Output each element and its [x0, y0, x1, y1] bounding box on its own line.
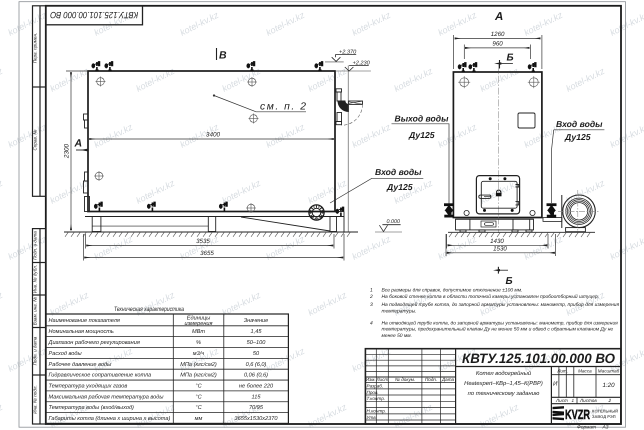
svg-text:Габариты котла (длинна х ширин: Габариты котла (длинна х ширина х высота…	[49, 415, 171, 422]
svg-text:Номинальная мощность: Номинальная мощность	[49, 329, 114, 335]
svg-text:Разраб.: Разраб.	[367, 384, 384, 389]
svg-text:Инв. № дубл.: Инв. № дубл.	[33, 265, 38, 293]
svg-text:№ докум.: № докум.	[395, 377, 415, 382]
svg-text:KVZR: KVZR	[565, 407, 590, 422]
svg-text:Диапазон рабочего регулировани: Диапазон рабочего регулирования	[48, 339, 140, 346]
svg-text:не более 220: не более 220	[239, 383, 274, 390]
svg-text:И: И	[553, 381, 558, 388]
svg-text:На отводящей трубе котла, до з: На отводящей трубе котла, до запорной ар…	[382, 321, 619, 327]
svg-text:Листов: Листов	[579, 398, 597, 403]
svg-text:0.000: 0.000	[387, 219, 401, 225]
svg-text:На подводящей трубе котла, до: На подводящей трубе котла, до запорной а…	[382, 302, 620, 308]
svg-text:Наименование показателя: Наименование показателя	[49, 318, 120, 324]
svg-text:1,45: 1,45	[251, 329, 263, 335]
svg-text:2: 2	[608, 398, 612, 403]
svg-text:Рабочее давление воды: Рабочее давление воды	[49, 361, 112, 368]
svg-text:3400: 3400	[206, 132, 221, 139]
svg-text:Справ. №: Справ. №	[33, 130, 38, 151]
svg-text:1: 1	[370, 288, 373, 294]
svg-text:температуры.: температуры.	[382, 309, 417, 314]
svg-text:1260: 1260	[491, 31, 505, 38]
svg-text:+2.230: +2.230	[353, 60, 371, 66]
svg-text:2: 2	[369, 294, 373, 300]
svg-text:температуры, предохранительный: температуры, предохранительный клапан Ду…	[382, 327, 614, 333]
svg-text:1430: 1430	[490, 238, 504, 245]
svg-text:Пров.: Пров.	[367, 390, 379, 395]
svg-text:измерения: измерения	[185, 321, 213, 327]
svg-text:Масштаб: Масштаб	[598, 369, 620, 374]
svg-text:1:20: 1:20	[602, 382, 615, 389]
svg-text:А: А	[494, 11, 503, 23]
svg-text:1: 1	[572, 398, 575, 403]
svg-text:Перв. примен.: Перв. примен.	[33, 33, 38, 64]
svg-text:3: 3	[370, 302, 373, 308]
svg-text:Температура уходящих газов: Температура уходящих газов	[49, 383, 128, 390]
svg-text:3655: 3655	[200, 250, 214, 257]
svg-text:Подп.: Подп.	[425, 377, 437, 382]
svg-text:Лист: Лист	[555, 398, 568, 403]
svg-text:1530: 1530	[493, 246, 507, 253]
svg-text:А3: А3	[602, 424, 609, 430]
svg-text:°С: °С	[195, 384, 202, 390]
svg-text:Максимальная рабочая температу: Максимальная рабочая температура воды	[49, 393, 164, 400]
svg-text:Все размеры для справок, допус: Все размеры для справок, допустимое откл…	[382, 288, 523, 294]
svg-text:Котел водогрейный: Котел водогрейный	[476, 370, 532, 377]
svg-text:Подп. и дата: Подп. и дата	[33, 336, 38, 365]
svg-text:МПа (кгс/см2): МПа (кгс/см2)	[180, 361, 217, 368]
svg-text:МПа (кгс/см2): МПа (кгс/см2)	[180, 372, 217, 379]
svg-text:Heatexpert–КВр–1,45–К(РВР): Heatexpert–КВр–1,45–К(РВР)	[464, 380, 543, 387]
svg-text:Вход воды: Вход воды	[556, 119, 603, 129]
svg-text:Температура воды (вход/выход): Температура воды (вход/выход)	[49, 404, 135, 411]
svg-text:Дата: Дата	[441, 377, 455, 382]
svg-text:Ду125: Ду125	[408, 130, 435, 140]
svg-text:2300: 2300	[64, 143, 71, 159]
svg-text:Лист: Лист	[375, 377, 388, 382]
svg-text:Лит.: Лит.	[556, 369, 568, 374]
svg-text:Выход воды: Выход воды	[395, 114, 450, 124]
svg-text:ЗАВОД РЭП: ЗАВОД РЭП	[592, 414, 616, 419]
svg-text:На боковой стенке котла в обла: На боковой стенке котла в области топочн…	[382, 294, 600, 300]
svg-text:50: 50	[253, 351, 260, 357]
svg-text:Н.контр.: Н.контр.	[367, 409, 386, 414]
svg-text:Формат: Формат	[577, 424, 596, 430]
svg-text:КВТУ.125.101.00.000 ВО: КВТУ.125.101.00.000 ВО	[50, 10, 138, 20]
svg-text:%: %	[196, 340, 201, 346]
svg-text:Масса: Масса	[578, 369, 592, 374]
svg-text:3655х1530х2370: 3655х1530х2370	[235, 416, 279, 422]
svg-text:КОТЕЛЬНЫЙ: КОТЕЛЬНЫЙ	[592, 409, 618, 414]
svg-text:°С: °С	[195, 394, 202, 400]
svg-text:Изм.: Изм.	[366, 377, 376, 382]
svg-text:Гидравлическое сопративление к: Гидравлическое сопративление котла	[49, 372, 152, 379]
svg-text:Взам. инв. №: Взам. инв. №	[33, 297, 38, 325]
svg-text:А: А	[74, 138, 83, 150]
svg-text:Ду125: Ду125	[564, 132, 591, 142]
svg-text:0,6 (6,0): 0,6 (6,0)	[246, 361, 267, 368]
svg-text:Техническая характеристика: Техническая характеристика	[114, 306, 184, 313]
svg-text:Инв. № подл.: Инв. № подл.	[33, 385, 38, 414]
svg-text:Вход воды: Вход воды	[375, 167, 422, 177]
svg-text:50–100: 50–100	[247, 340, 267, 346]
svg-text:3535: 3535	[196, 238, 210, 245]
svg-text:по техническому заданию: по техническому заданию	[468, 390, 540, 397]
svg-text:Подп. и дата: Подп. и дата	[33, 231, 38, 260]
svg-text:МВт: МВт	[192, 329, 205, 335]
svg-text:м3/ч: м3/ч	[193, 350, 204, 357]
svg-text:70/95: 70/95	[249, 404, 264, 411]
svg-text:Б: Б	[506, 276, 513, 287]
svg-text:Расход воды: Расход воды	[49, 350, 82, 357]
svg-text:Значение: Значение	[244, 318, 269, 324]
svg-text:В: В	[219, 50, 227, 62]
svg-text:Б: Б	[507, 53, 514, 64]
svg-text:115: 115	[252, 394, 262, 400]
svg-text:°С: °С	[195, 405, 202, 411]
svg-text:960: 960	[492, 41, 503, 48]
svg-text:0,06 (0,6): 0,06 (0,6)	[244, 372, 268, 379]
svg-text:+2.370: +2.370	[339, 49, 357, 55]
svg-text:мм: мм	[195, 416, 203, 422]
svg-text:Утв.: Утв.	[367, 415, 377, 420]
svg-text:Ду125: Ду125	[386, 182, 413, 192]
svg-text:КВТУ.125.101.00.000 ВО: КВТУ.125.101.00.000 ВО	[462, 351, 615, 366]
svg-text:4: 4	[370, 321, 373, 327]
svg-text:Т.контр.: Т.контр.	[367, 396, 386, 401]
svg-text:менее 50 мм.: менее 50 мм.	[382, 333, 412, 339]
